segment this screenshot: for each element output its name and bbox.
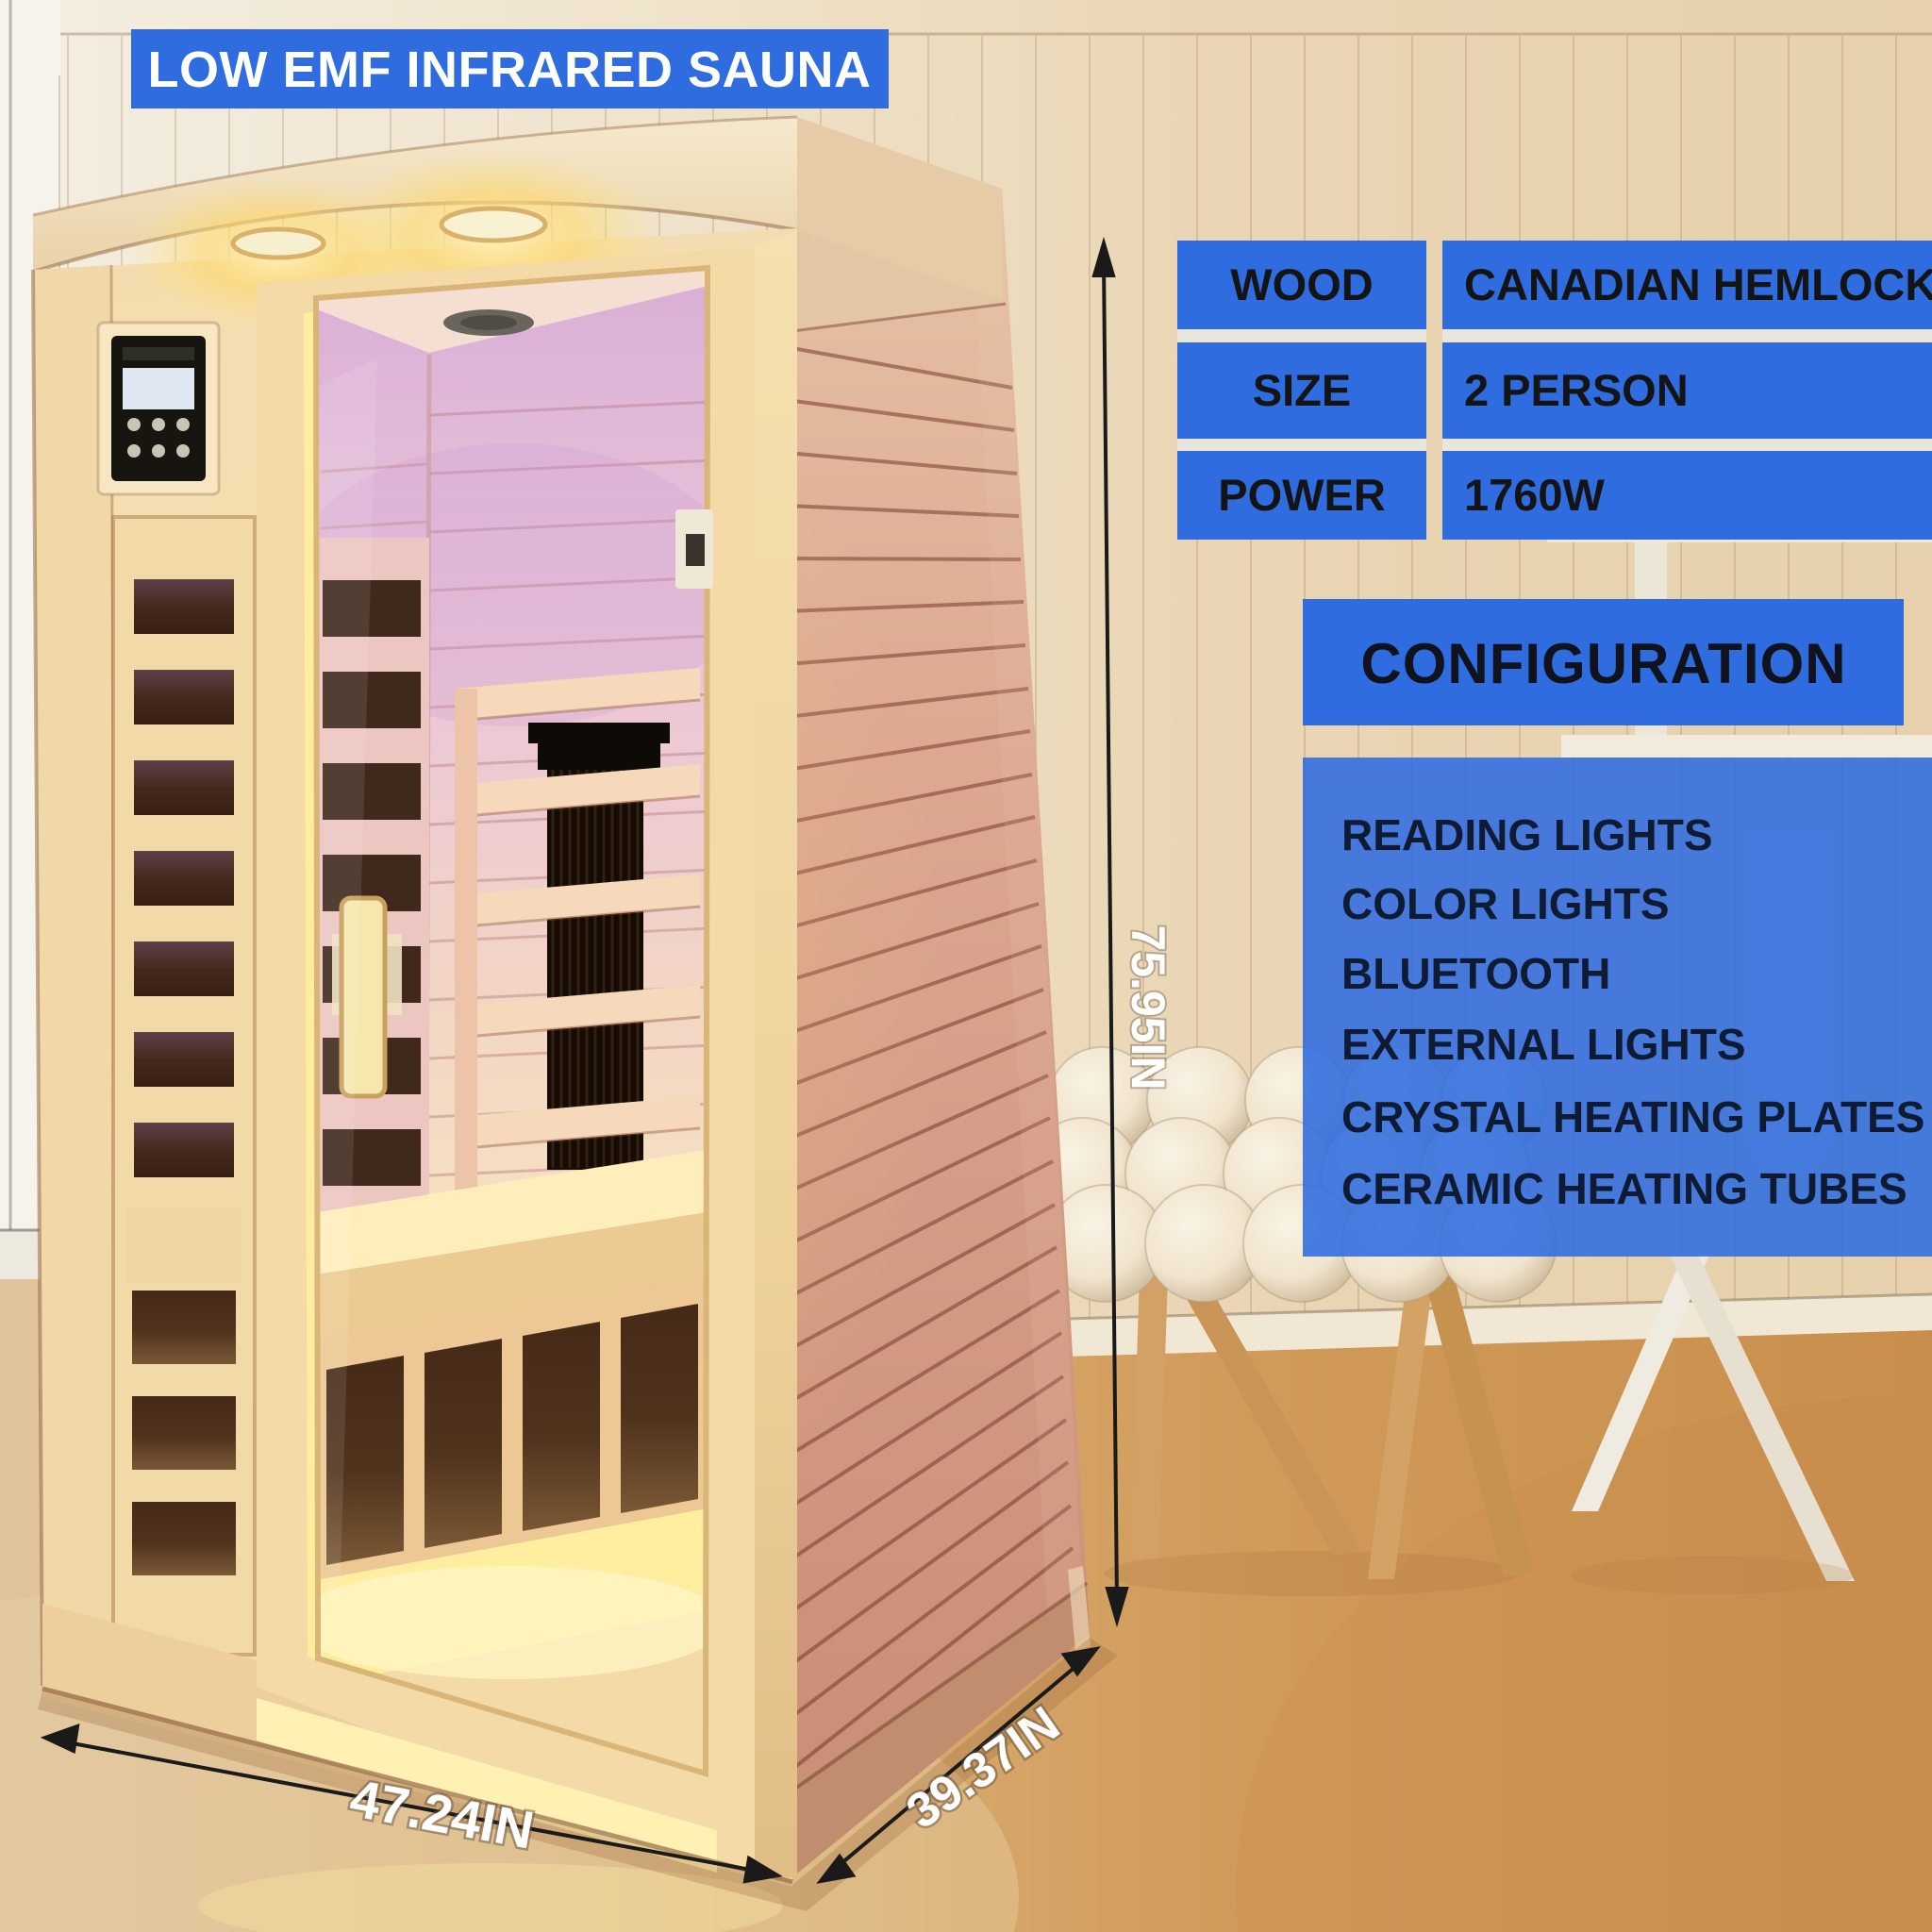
svg-text:2 PERSON: 2 PERSON <box>1464 365 1689 415</box>
svg-text:POWER: POWER <box>1218 470 1386 520</box>
svg-text:WOOD: WOOD <box>1230 259 1373 309</box>
svg-text:1760W: 1760W <box>1464 470 1606 520</box>
svg-text:75.95IN: 75.95IN <box>1122 924 1174 1090</box>
svg-text:SIZE: SIZE <box>1253 365 1351 415</box>
svg-text:EXTERNAL LIGHTS: EXTERNAL LIGHTS <box>1341 1020 1746 1069</box>
svg-text:READING LIGHTS: READING LIGHTS <box>1341 810 1713 859</box>
svg-text:CRYSTAL HEATING PLATES: CRYSTAL HEATING PLATES <box>1341 1092 1924 1141</box>
svg-text:CERAMIC HEATING TUBES: CERAMIC HEATING TUBES <box>1341 1164 1907 1213</box>
svg-text:CONFIGURATION: CONFIGURATION <box>1360 632 1846 695</box>
svg-text:CANADIAN HEMLOCK: CANADIAN HEMLOCK <box>1464 259 1932 309</box>
svg-text:BLUETOOTH: BLUETOOTH <box>1341 949 1610 998</box>
svg-text:LOW EMF INFRARED SAUNA: LOW EMF INFRARED SAUNA <box>148 42 872 98</box>
svg-text:COLOR LIGHTS: COLOR LIGHTS <box>1341 879 1670 928</box>
